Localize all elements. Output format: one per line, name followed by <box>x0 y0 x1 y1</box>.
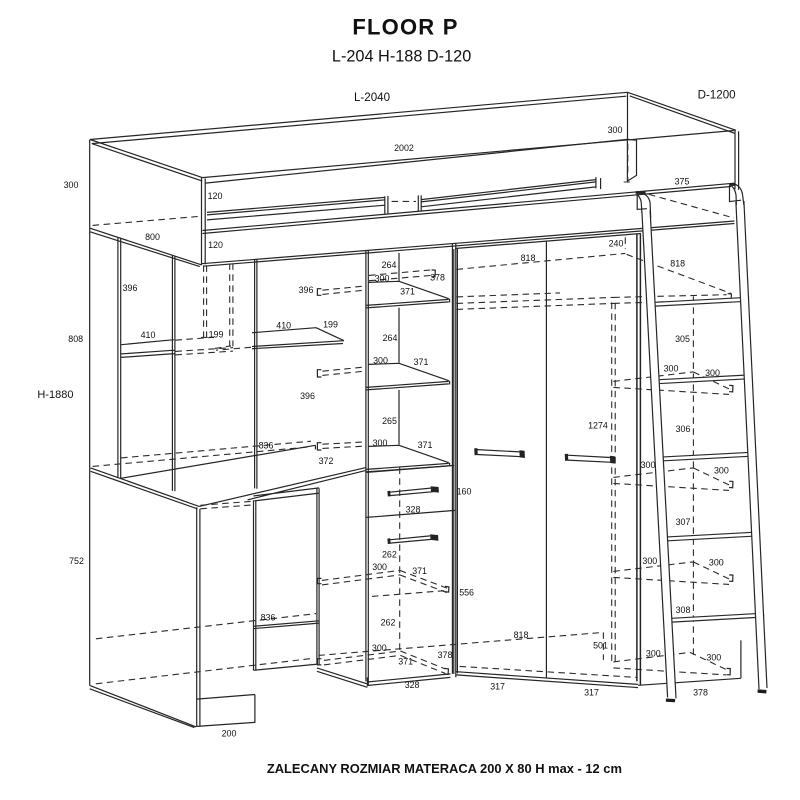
svg-text:ZALECANY ROZMIAR MATERACA 200: ZALECANY ROZMIAR MATERACA 200 X 80 H max… <box>267 761 622 776</box>
svg-text:300: 300 <box>372 562 387 572</box>
svg-text:371: 371 <box>400 286 415 296</box>
svg-text:120: 120 <box>208 191 223 201</box>
svg-text:300: 300 <box>709 558 724 568</box>
svg-text:1274: 1274 <box>588 421 608 431</box>
svg-text:396: 396 <box>300 391 315 401</box>
svg-text:375: 375 <box>675 177 690 187</box>
svg-text:300: 300 <box>373 356 388 366</box>
svg-text:378: 378 <box>693 687 708 697</box>
svg-text:378: 378 <box>438 650 453 660</box>
svg-text:378: 378 <box>430 273 445 283</box>
svg-text:300: 300 <box>705 368 720 378</box>
svg-text:300: 300 <box>372 643 387 653</box>
svg-text:556: 556 <box>459 588 474 598</box>
svg-text:200: 200 <box>222 728 237 738</box>
svg-text:300: 300 <box>664 364 679 374</box>
svg-text:300: 300 <box>373 438 388 448</box>
svg-text:317: 317 <box>490 681 505 691</box>
svg-text:300: 300 <box>714 466 729 476</box>
svg-text:371: 371 <box>414 357 429 367</box>
svg-text:160: 160 <box>457 486 472 496</box>
svg-text:808: 808 <box>68 334 83 344</box>
svg-text:317: 317 <box>584 688 599 698</box>
svg-text:307: 307 <box>676 517 691 527</box>
svg-text:371: 371 <box>398 657 413 667</box>
svg-text:300: 300 <box>706 652 721 662</box>
svg-text:L-2040: L-2040 <box>354 91 390 104</box>
svg-text:410: 410 <box>141 330 156 340</box>
svg-text:300: 300 <box>608 125 623 135</box>
svg-text:306: 306 <box>676 424 691 434</box>
svg-text:264: 264 <box>382 260 397 270</box>
svg-text:396: 396 <box>123 283 138 293</box>
svg-text:300: 300 <box>642 556 657 566</box>
svg-text:FLOOR P: FLOOR P <box>352 15 458 40</box>
svg-text:752: 752 <box>69 556 84 566</box>
svg-text:120: 120 <box>208 240 223 250</box>
svg-text:265: 265 <box>382 416 397 426</box>
svg-text:262: 262 <box>381 617 396 627</box>
svg-text:2002: 2002 <box>394 143 414 153</box>
svg-text:L-204 H-188 D-120: L-204 H-188 D-120 <box>332 48 471 66</box>
svg-text:264: 264 <box>383 333 398 343</box>
svg-text:H-1880: H-1880 <box>37 389 73 401</box>
svg-text:240: 240 <box>609 238 624 248</box>
svg-text:371: 371 <box>418 440 433 450</box>
svg-text:300: 300 <box>646 649 661 659</box>
svg-text:328: 328 <box>406 504 421 514</box>
svg-text:818: 818 <box>670 259 685 269</box>
svg-text:305: 305 <box>675 334 690 344</box>
svg-text:396: 396 <box>299 285 314 295</box>
svg-text:836: 836 <box>261 613 276 623</box>
svg-text:308: 308 <box>676 605 691 615</box>
svg-text:501: 501 <box>593 640 608 650</box>
svg-text:410: 410 <box>276 321 291 331</box>
svg-text:372: 372 <box>319 456 334 466</box>
svg-text:262: 262 <box>382 550 397 560</box>
svg-text:328: 328 <box>405 680 420 690</box>
svg-text:300: 300 <box>64 180 79 190</box>
svg-text:300: 300 <box>641 460 656 470</box>
svg-text:199: 199 <box>323 320 338 330</box>
svg-text:300: 300 <box>375 274 390 284</box>
svg-text:818: 818 <box>521 253 536 263</box>
svg-text:818: 818 <box>514 630 529 640</box>
svg-text:371: 371 <box>412 566 427 576</box>
svg-text:836: 836 <box>259 441 274 451</box>
svg-text:D-1200: D-1200 <box>698 88 736 101</box>
svg-text:199: 199 <box>209 330 224 340</box>
svg-text:800: 800 <box>145 232 160 242</box>
